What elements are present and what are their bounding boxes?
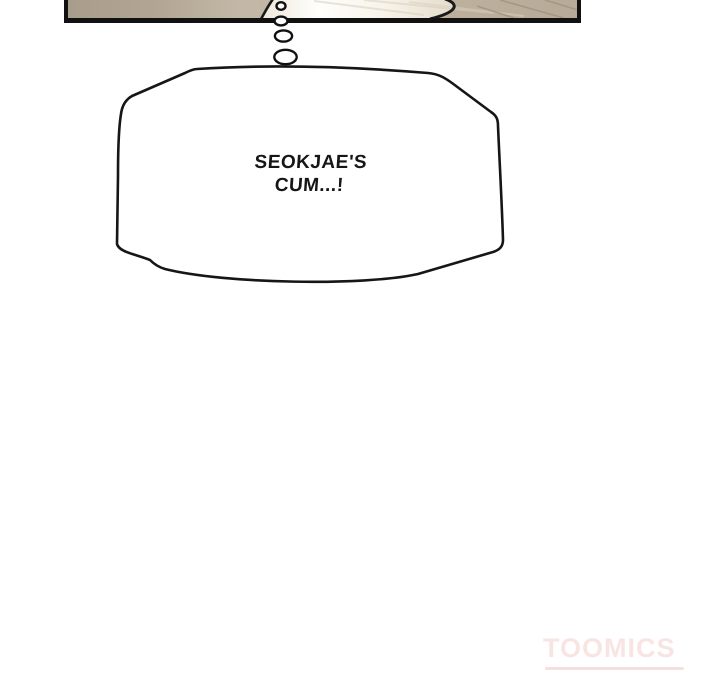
watermark-underline (545, 667, 684, 670)
thought-bubble-line-2: CUM...! (188, 174, 430, 197)
comic-panel-strip (64, 0, 581, 23)
trail-bubble-2 (275, 17, 288, 26)
thought-bubble-text: SEOKJAE'S CUM...! (188, 151, 431, 197)
panel-border-bottom (64, 18, 581, 23)
panel-border-right (577, 0, 581, 23)
toomics-watermark: TOOMICS (543, 633, 676, 664)
trail-bubble-1 (277, 2, 286, 10)
trail-bubble-3 (275, 30, 292, 41)
comic-page: SEOKJAE'S CUM...! TOOMICS (0, 0, 720, 700)
panel-border-left (64, 0, 68, 23)
thought-bubble-line-1: SEOKJAE'S (190, 151, 432, 174)
